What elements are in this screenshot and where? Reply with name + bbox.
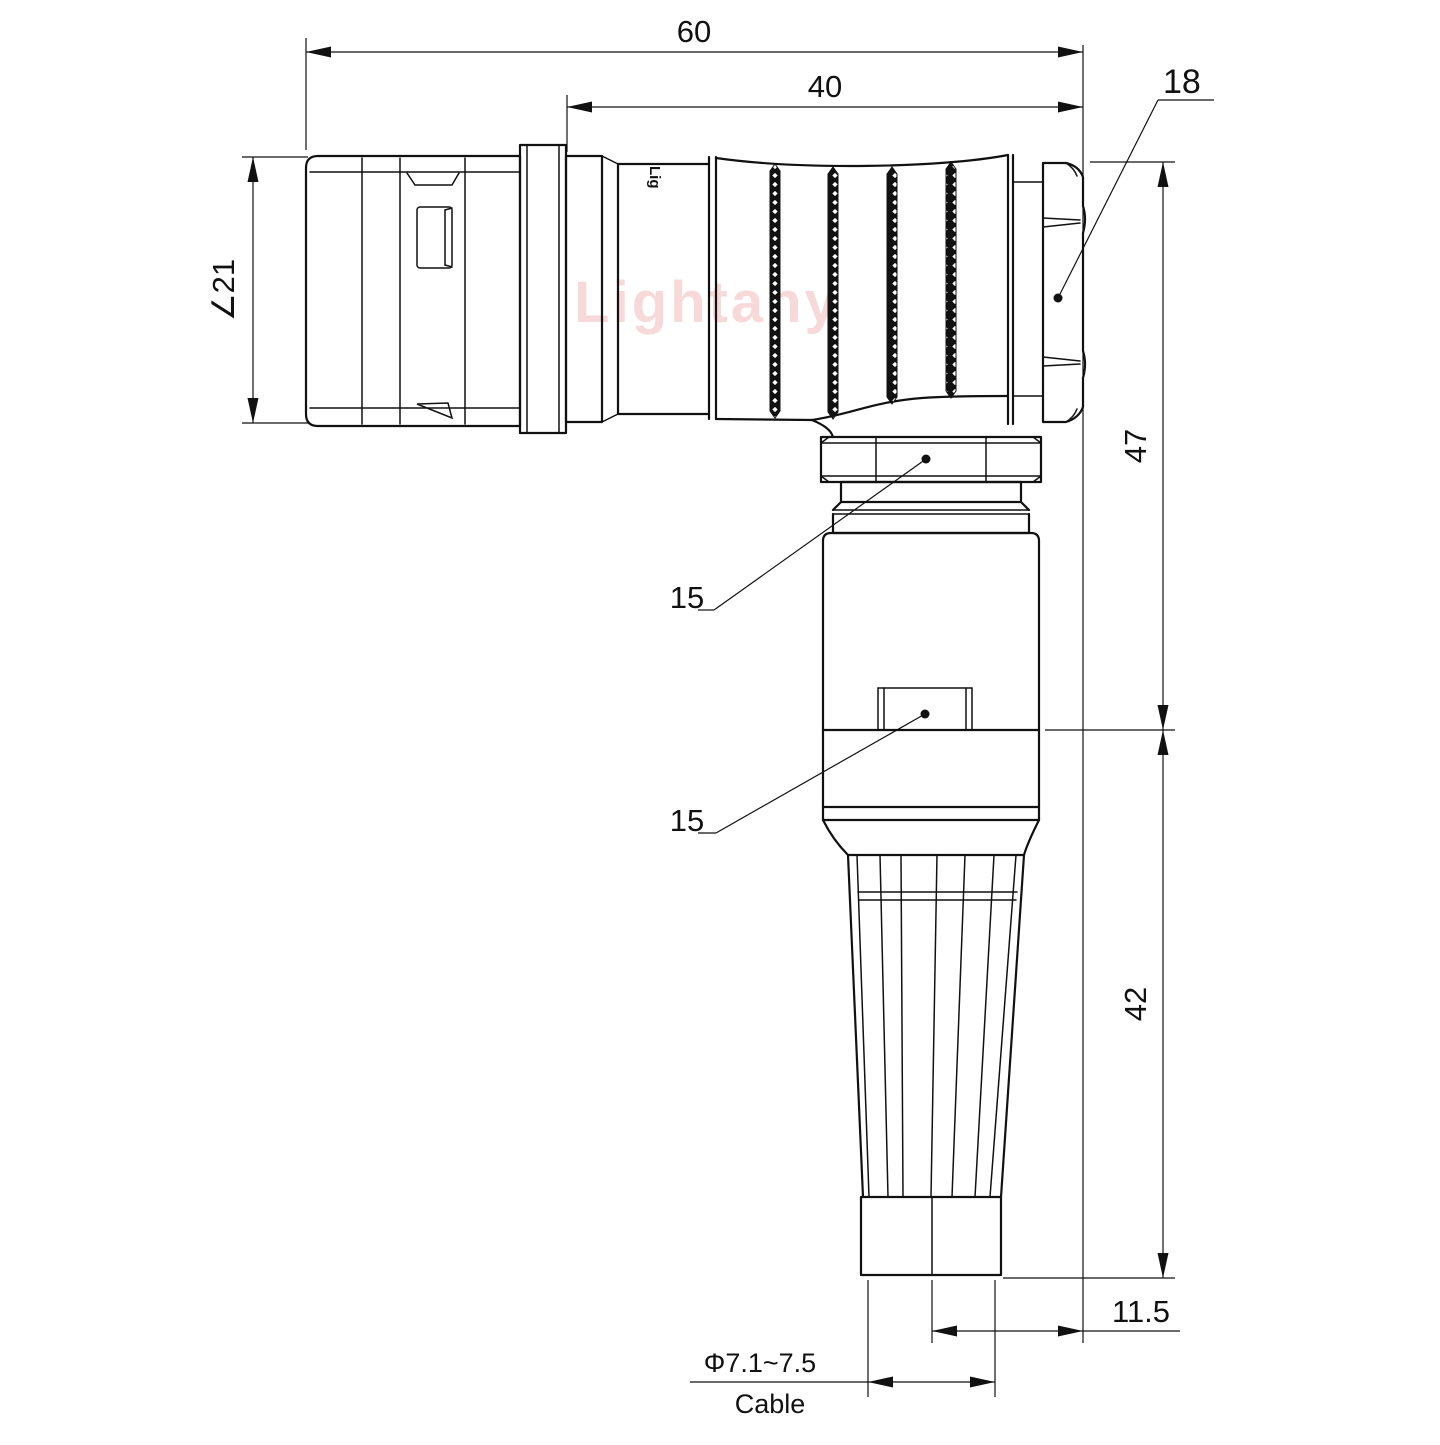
dim-label-60: 60 xyxy=(677,14,711,49)
leader-dot xyxy=(1054,294,1063,303)
watermark-text: Lightany xyxy=(574,270,840,335)
dim-offset-11-5: 11.5 xyxy=(932,1280,1180,1343)
dim-rear-40: 40 xyxy=(567,69,1083,152)
connector-drawing: Lightany xyxy=(0,0,1440,1440)
dim-label-42: 42 xyxy=(1118,987,1153,1021)
latch-window xyxy=(878,688,972,730)
right-hex-nut xyxy=(1043,163,1085,422)
leader-18: 18 xyxy=(1054,63,1215,303)
front-sleeve xyxy=(306,156,520,426)
bottom-notch xyxy=(417,403,452,418)
dim-label-11-5: 11.5 xyxy=(1112,1294,1170,1329)
knurl-strip xyxy=(946,162,956,398)
dim-label-47: 47 xyxy=(1118,429,1153,463)
elbow-neck xyxy=(1013,182,1043,396)
dim-label-18: 18 xyxy=(1163,63,1201,101)
dim-height-47: 47 xyxy=(1045,162,1175,730)
dim-overall-60: 60 xyxy=(306,14,1083,1343)
cable-word: Cable xyxy=(735,1389,806,1419)
key-window xyxy=(417,207,452,268)
knurl-strip xyxy=(887,167,897,404)
leader-15-nut: 15 xyxy=(670,455,931,616)
leader-dot xyxy=(921,710,930,719)
dim-label-40: 40 xyxy=(808,69,842,104)
knurl-strip xyxy=(770,164,780,418)
leader-dot xyxy=(922,455,931,464)
knurl-strip xyxy=(828,167,838,419)
strain-relief-boot xyxy=(823,820,1039,1197)
dim-cable-dia: Φ7.1~7.5 Cable xyxy=(690,1280,995,1419)
engraved-marking: Lig xyxy=(646,166,663,189)
leader-15-body: 15 xyxy=(670,710,930,839)
drawing-sheet: Lightany xyxy=(0,0,1440,1440)
dim-label-dia21: ∠21 xyxy=(206,259,241,321)
rear-flange xyxy=(520,145,566,433)
cable-ferrule xyxy=(861,1197,1001,1275)
vertical-body xyxy=(821,437,1041,1275)
hex-nut-15 xyxy=(821,437,1041,482)
dim-dia-21: ∠21 xyxy=(206,157,308,423)
lower-body xyxy=(823,533,1039,820)
collet-rings xyxy=(833,482,1029,533)
dim-height-42: 42 xyxy=(1003,730,1175,1278)
key-pad xyxy=(407,173,459,185)
dim-label-cable-dia: Φ7.1~7.5 xyxy=(704,1348,816,1378)
